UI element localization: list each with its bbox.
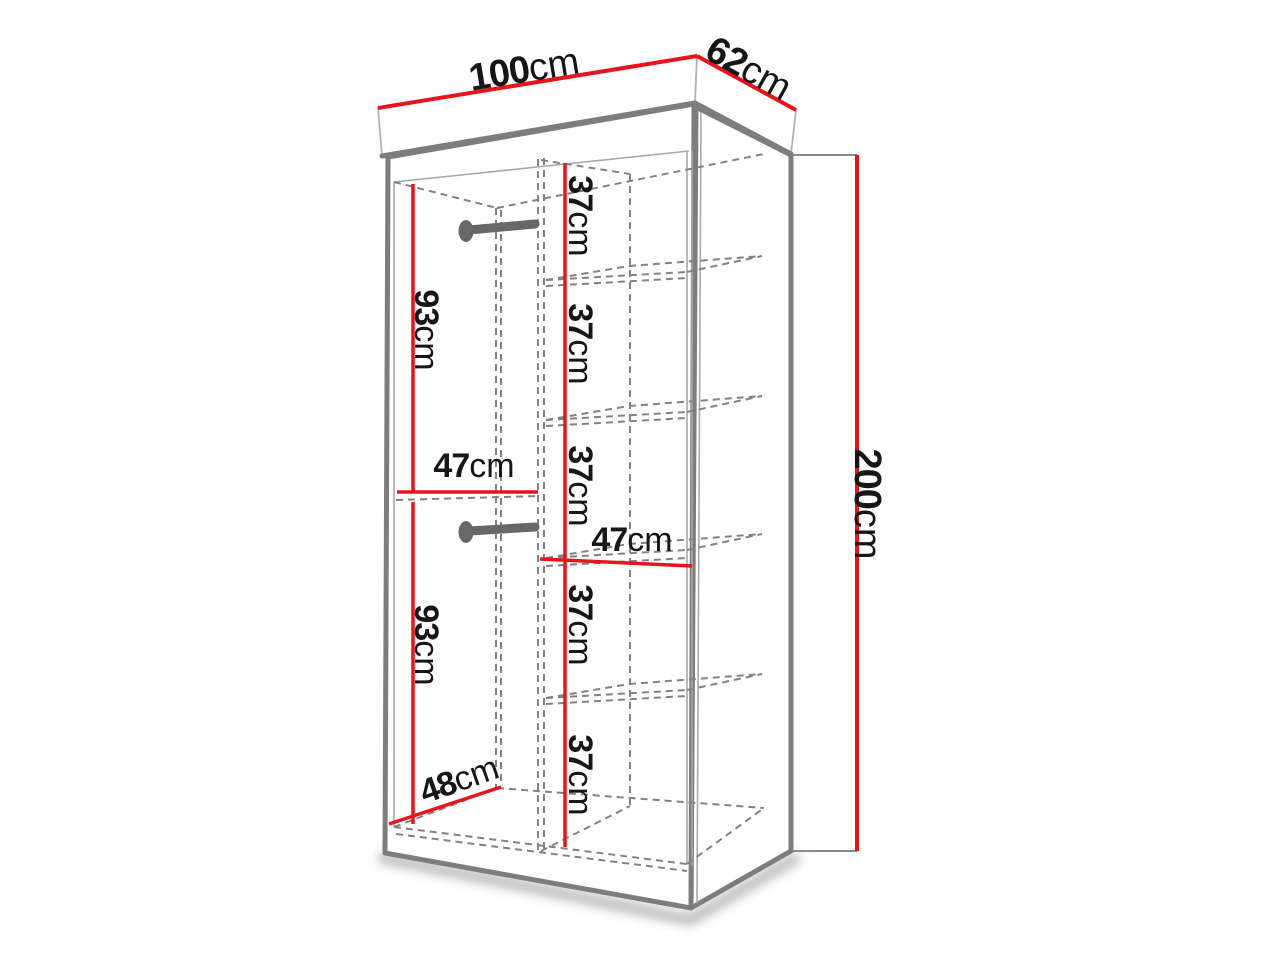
dim-label-left-upper-width: 47cm — [433, 447, 514, 485]
side-panel-face — [691, 107, 791, 908]
diagram-canvas: 100cm 62cm 200cm 93cm 47cm 93cm 47cm 48c… — [0, 0, 1280, 960]
dim-label-left-upper-hang: 93cm — [407, 289, 445, 370]
rod-end-cap — [459, 521, 474, 543]
dim-label-right-height: 200cm — [846, 448, 888, 559]
rod-end-cap — [459, 220, 474, 242]
rod-bar — [469, 224, 535, 230]
dim-label-shelf-3: 37cm — [561, 445, 599, 526]
dim-label-mid-shelf-width: 47cm — [591, 521, 672, 559]
dim-label-shelf-4: 37cm — [561, 584, 599, 665]
dim-label-shelf-1: 37cm — [561, 175, 599, 256]
wardrobe-side-panel — [691, 107, 791, 908]
dim-label-left-lower-hang: 93cm — [407, 604, 445, 685]
wardrobe-dimension-diagram: 100cm 62cm 200cm 93cm 47cm 93cm 47cm 48c… — [0, 0, 1280, 960]
rod-bar — [469, 527, 535, 531]
dim-label-shelf-2: 37cm — [561, 303, 599, 384]
dim-label-shelf-5: 37cm — [561, 734, 599, 815]
